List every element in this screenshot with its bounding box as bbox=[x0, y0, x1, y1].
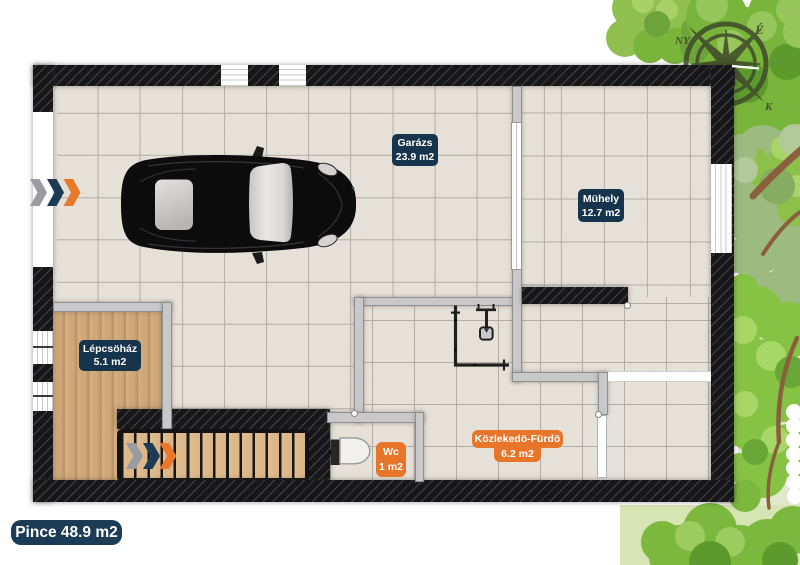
svg-text:NY: NY bbox=[674, 35, 691, 47]
svg-text:É: É bbox=[754, 22, 764, 37]
svg-text:K: K bbox=[764, 101, 773, 113]
